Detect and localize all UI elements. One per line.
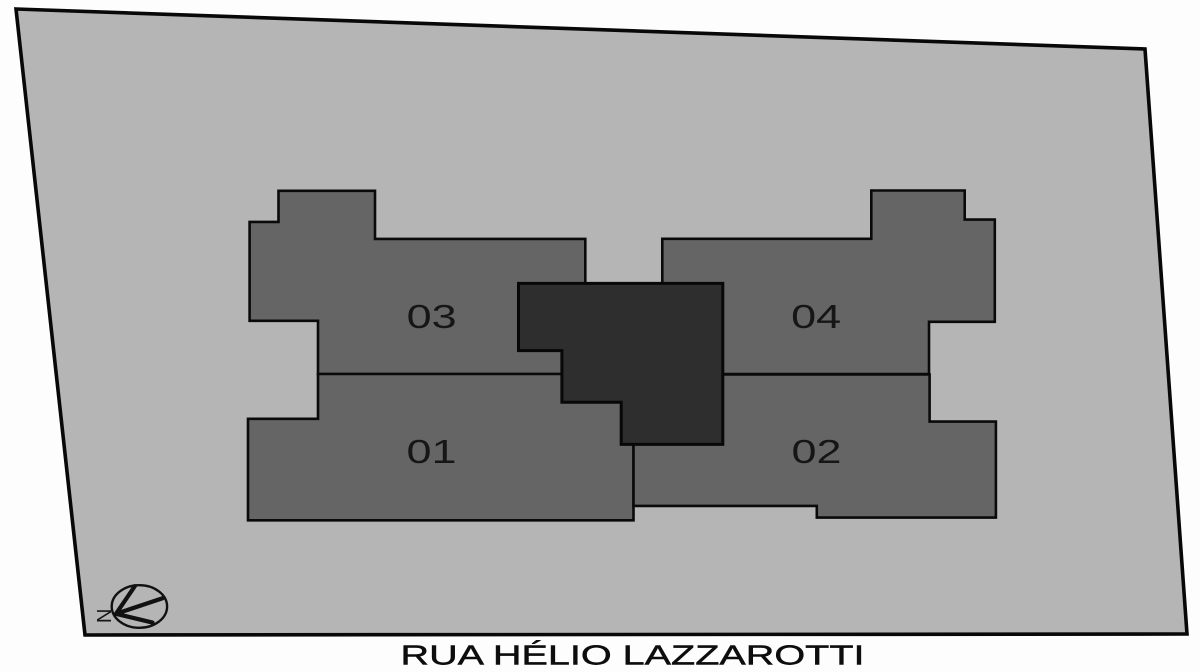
svg-text:N: N (92, 609, 114, 623)
svg-text:02: 02 (792, 433, 842, 470)
svg-text:04: 04 (791, 298, 841, 335)
svg-text:RUA HÉLIO LAZZAROTTI: RUA HÉLIO LAZZAROTTI (401, 639, 865, 670)
svg-text:03: 03 (407, 298, 457, 335)
svg-text:01: 01 (407, 433, 457, 470)
